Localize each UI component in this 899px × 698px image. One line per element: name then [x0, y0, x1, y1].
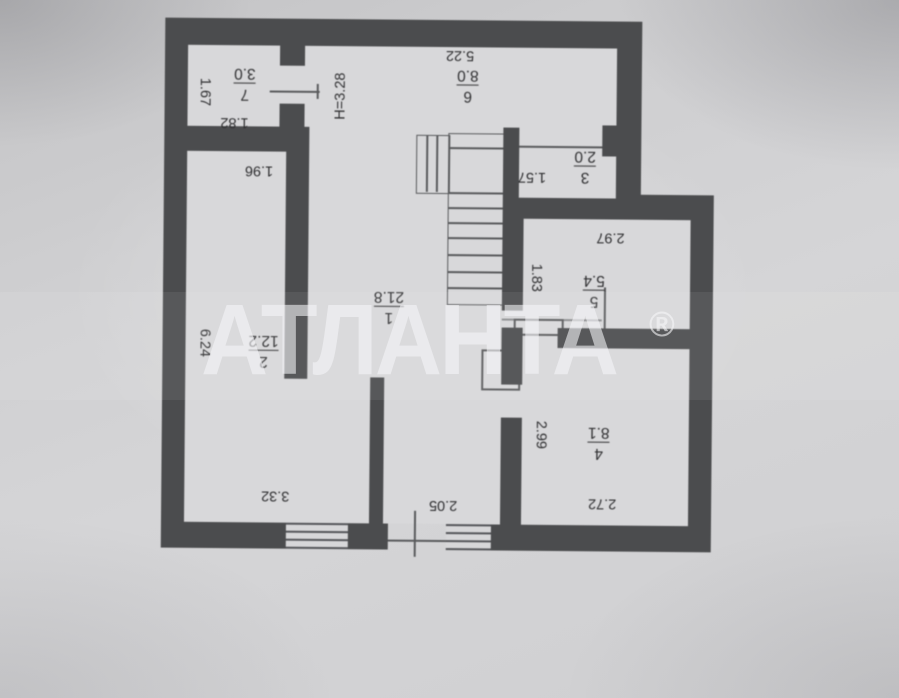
wall-top [165, 18, 642, 49]
fraction-bar [588, 442, 610, 443]
room-number: 3 [574, 168, 596, 186]
dim-2.97: 2.97 [596, 229, 624, 245]
floorplan-photo: 7 3.0 6 8.0 3 2.0 5 5.4 1 21.8 2 12.2 [0, 0, 899, 698]
door-leaf-line-room7 [270, 91, 320, 93]
wall-room6-stub [602, 125, 618, 156]
wall-left [161, 18, 189, 548]
room-label-4: 4 8.1 [588, 423, 610, 462]
room-number: 7 [234, 85, 256, 103]
entrance-threshold-line [388, 540, 446, 543]
wall-bottom-c [491, 524, 711, 552]
room-area: 3.0 [234, 64, 256, 82]
dim-1.82: 1.82 [220, 114, 248, 130]
registered-trademark-icon: ® [649, 305, 675, 345]
room-label-7: 7 3.0 [234, 64, 256, 103]
window-hall [446, 524, 491, 550]
wall-room4-left [500, 418, 522, 528]
stair-landing-box [416, 135, 451, 194]
watermark-brand: АТЛАНТА [201, 290, 616, 390]
dimension-tick-entrance [414, 511, 416, 557]
dim-1.96: 1.96 [245, 162, 273, 178]
wall-stair-right [503, 128, 520, 198]
dim-1.67: 1.67 [197, 78, 213, 106]
room-number: 6 [457, 87, 479, 105]
dim-1.57: 1.57 [518, 169, 546, 185]
fraction-bar [234, 83, 256, 84]
wall-room7-right-a [280, 39, 305, 66]
window-room2 [286, 523, 348, 550]
room-area: 8.1 [588, 423, 610, 441]
wall-right-upper [616, 42, 642, 199]
dim-2.72: 2.72 [588, 495, 616, 511]
dimension-tick [317, 84, 319, 99]
wall-bottom-a [161, 522, 286, 549]
dim-3.32: 3.32 [261, 487, 289, 503]
fraction-bar [457, 85, 479, 86]
room-label-6: 6 8.0 [457, 66, 479, 105]
room-area: 8.0 [457, 66, 479, 84]
room-label-3: 3 2.0 [574, 147, 596, 186]
dim-5.22: 5.22 [446, 47, 474, 63]
dim-2.05: 2.05 [429, 497, 457, 513]
dim-2.99: 2.99 [533, 421, 549, 449]
stair-flight-box [447, 133, 508, 306]
fraction-bar [574, 166, 596, 167]
wall-room3-bottom [503, 198, 619, 220]
room-area: 2.0 [574, 147, 596, 165]
dim-height: H=3.28 [332, 72, 348, 119]
room-number: 4 [588, 444, 610, 462]
